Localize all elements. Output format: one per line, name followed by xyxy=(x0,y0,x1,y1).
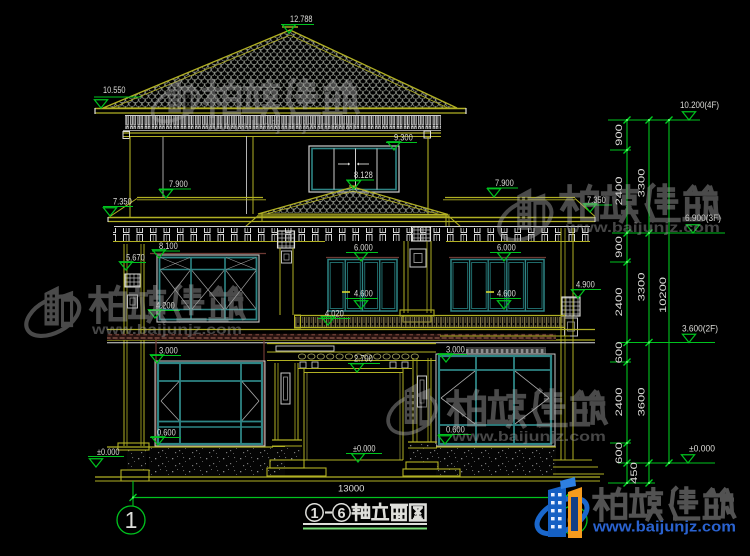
svg-text:1: 1 xyxy=(310,506,318,522)
svg-text:7.350: 7.350 xyxy=(113,197,132,207)
svg-text:10.200(4F): 10.200(4F) xyxy=(680,100,719,110)
svg-text:www.baijunjz.com: www.baijunjz.com xyxy=(592,519,736,536)
svg-text:1: 1 xyxy=(125,507,138,533)
svg-text:12.788: 12.788 xyxy=(290,14,313,24)
svg-text:3600: 3600 xyxy=(637,388,648,417)
svg-text:600: 600 xyxy=(614,442,625,464)
svg-text:13000: 13000 xyxy=(338,484,364,495)
svg-text:10.550: 10.550 xyxy=(103,85,126,95)
svg-text:8.128: 8.128 xyxy=(354,170,373,180)
svg-text:7.900: 7.900 xyxy=(495,178,514,188)
svg-text:900: 900 xyxy=(614,124,625,146)
svg-text:9.300: 9.300 xyxy=(394,133,413,143)
svg-text:3.000: 3.000 xyxy=(446,345,465,355)
svg-text:7.900: 7.900 xyxy=(169,179,188,189)
svg-text:±0.000: ±0.000 xyxy=(97,447,120,457)
svg-text:2400: 2400 xyxy=(614,388,625,417)
svg-text:450: 450 xyxy=(629,462,640,484)
svg-text:0.600: 0.600 xyxy=(157,428,176,438)
svg-text:4.600: 4.600 xyxy=(497,289,516,299)
svg-text:3.000: 3.000 xyxy=(159,346,178,356)
svg-text:4.900: 4.900 xyxy=(576,280,595,290)
svg-text:6: 6 xyxy=(337,506,345,522)
svg-text:10200: 10200 xyxy=(658,277,669,313)
svg-text:3.600(2F): 3.600(2F) xyxy=(682,324,718,334)
svg-text:6.000: 6.000 xyxy=(354,243,373,253)
svg-text:600: 600 xyxy=(614,342,625,364)
svg-text:www.baijunjz.com: www.baijunjz.com xyxy=(565,219,720,235)
svg-text:2.700: 2.700 xyxy=(354,354,373,364)
svg-text:±0.000: ±0.000 xyxy=(689,444,715,454)
svg-text:3300: 3300 xyxy=(637,273,648,302)
svg-text:www.baijunjz.com: www.baijunjz.com xyxy=(451,428,606,444)
svg-text:±0.000: ±0.000 xyxy=(353,444,376,454)
svg-text:www.baijunjz.com: www.baijunjz.com xyxy=(205,119,356,135)
svg-text:www.baijunjz.com: www.baijunjz.com xyxy=(91,321,242,337)
svg-text:2400: 2400 xyxy=(614,288,625,317)
svg-text:4.600: 4.600 xyxy=(354,289,373,299)
svg-text:6.000: 6.000 xyxy=(497,243,516,253)
svg-text:900: 900 xyxy=(614,236,625,258)
svg-text:5.670: 5.670 xyxy=(126,253,145,263)
